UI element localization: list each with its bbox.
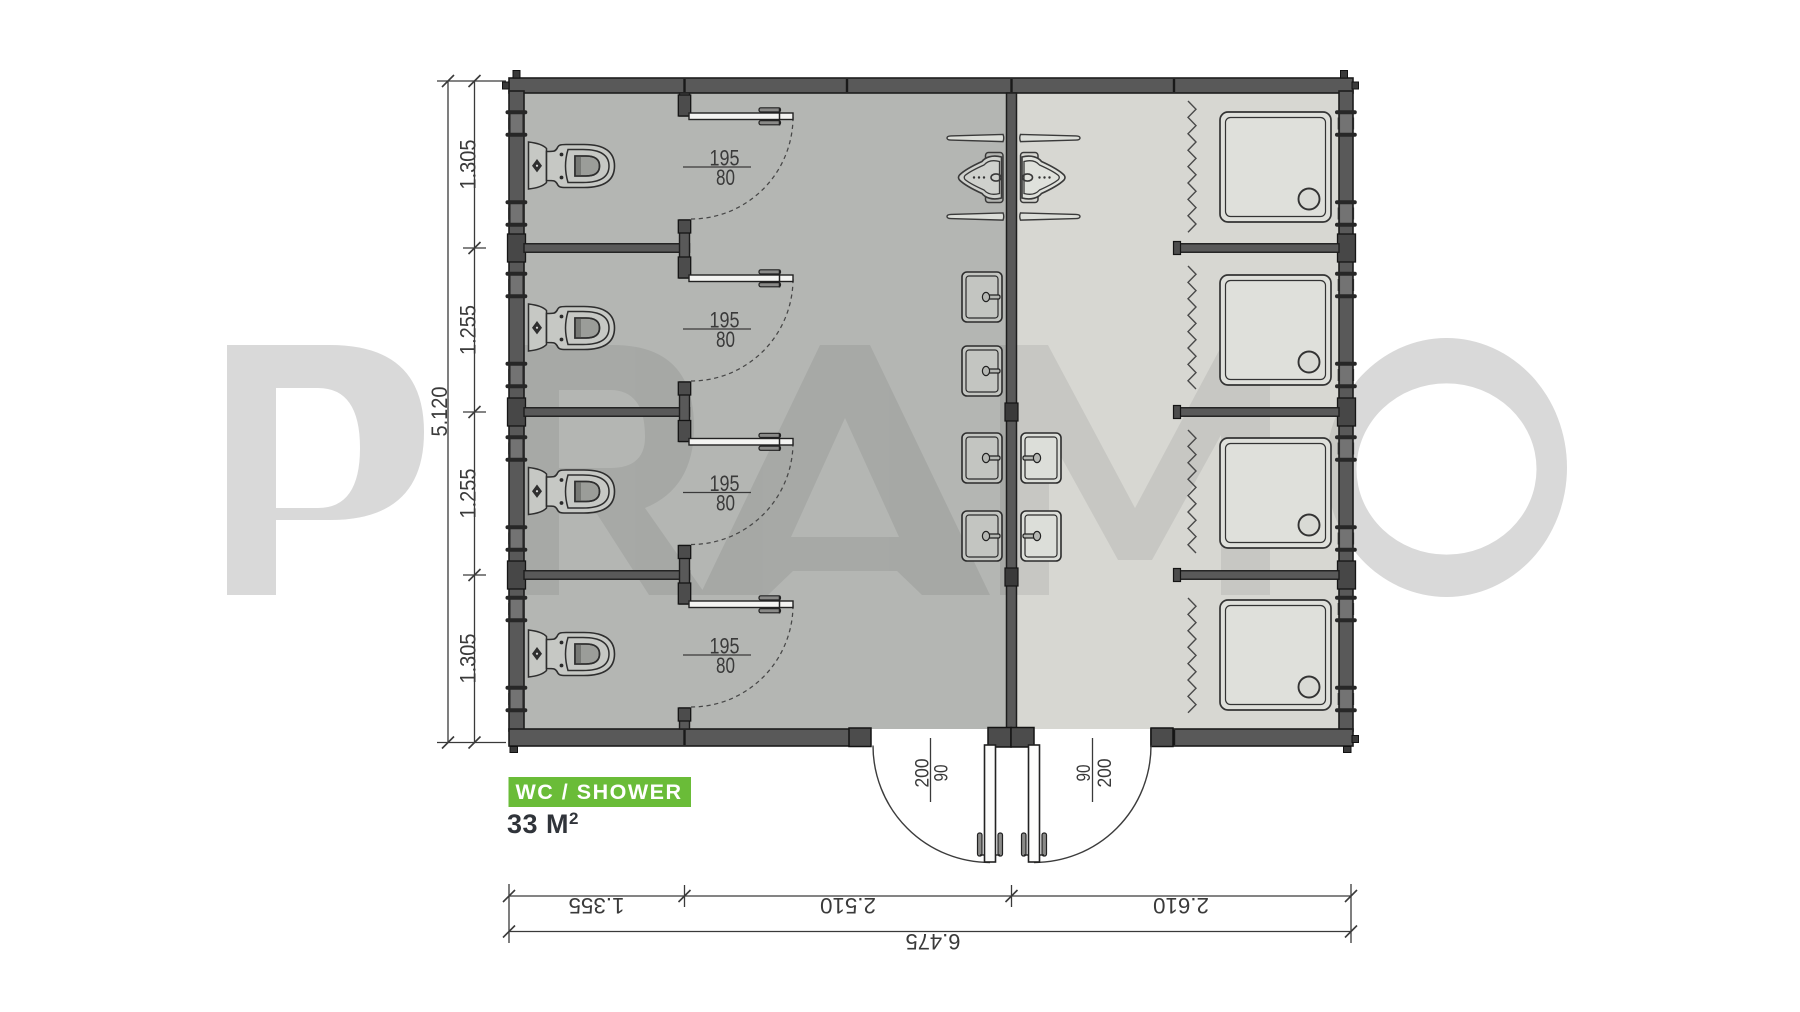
svg-text:80: 80	[716, 653, 735, 678]
svg-text:1.305: 1.305	[456, 634, 481, 684]
svg-text:80: 80	[716, 165, 735, 190]
svg-text:1.255: 1.255	[456, 305, 481, 355]
svg-text:90: 90	[1073, 764, 1095, 781]
svg-text:1.305: 1.305	[456, 140, 481, 190]
svg-text:2.510: 2.510	[820, 893, 876, 918]
svg-text:80: 80	[716, 491, 735, 516]
svg-text:WC / SHOWER: WC / SHOWER	[516, 780, 683, 804]
svg-text:1.355: 1.355	[569, 893, 625, 918]
svg-text:90: 90	[931, 764, 953, 781]
svg-text:6.475: 6.475	[906, 929, 961, 954]
svg-text:80: 80	[716, 327, 735, 352]
svg-text:1.255: 1.255	[456, 469, 481, 519]
svg-text:5.120: 5.120	[427, 387, 452, 437]
svg-text:200: 200	[1094, 758, 1116, 787]
svg-text:2.610: 2.610	[1153, 893, 1209, 918]
svg-text:33 M2: 33 M2	[507, 809, 579, 839]
